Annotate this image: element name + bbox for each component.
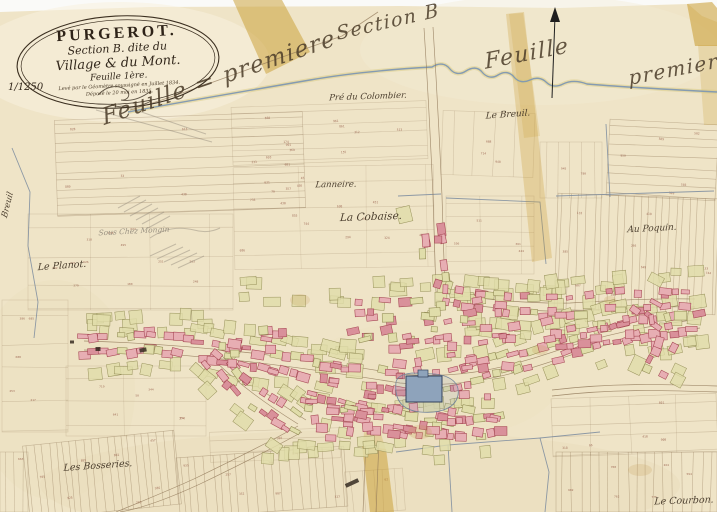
svg-text:295: 295 [631, 244, 637, 248]
svg-text:921: 921 [70, 261, 76, 265]
svg-text:705: 705 [39, 475, 45, 480]
svg-text:907: 907 [275, 491, 281, 495]
svg-text:503: 503 [681, 183, 687, 187]
svg-text:45: 45 [301, 176, 305, 180]
svg-text:861: 861 [339, 124, 345, 128]
scale-note: 1/1250 [8, 82, 43, 93]
svg-text:457: 457 [150, 438, 156, 443]
svg-text:744: 744 [304, 222, 310, 226]
svg-text:895: 895 [81, 458, 87, 463]
svg-text:945: 945 [561, 166, 567, 170]
svg-text:324: 324 [384, 236, 390, 240]
svg-text:602: 602 [568, 488, 574, 492]
svg-text:626: 626 [83, 260, 89, 264]
svg-text:33: 33 [121, 174, 125, 178]
svg-text:251: 251 [158, 260, 164, 264]
svg-text:900: 900 [661, 438, 667, 442]
svg-text:444: 444 [519, 249, 525, 253]
svg-text:513: 513 [397, 128, 403, 132]
stain [604, 296, 616, 304]
svg-text:386: 386 [20, 317, 26, 321]
stain [532, 345, 548, 355]
svg-text:436: 436 [297, 184, 303, 188]
svg-text:649: 649 [641, 265, 647, 269]
svg-text:54: 54 [363, 217, 367, 221]
svg-text:66: 66 [589, 443, 593, 447]
svg-text:495: 495 [121, 243, 127, 247]
svg-text:838: 838 [108, 231, 114, 235]
svg-text:361: 361 [515, 242, 521, 246]
svg-text:961: 961 [333, 119, 339, 123]
map-canvas: 6139018091747334363335766868143843023382… [0, 0, 717, 512]
svg-text:935: 935 [183, 463, 189, 467]
svg-text:582: 582 [694, 131, 700, 135]
svg-text:700: 700 [611, 465, 617, 469]
svg-text:744: 744 [706, 271, 712, 275]
svg-text:801: 801 [114, 453, 120, 458]
church-tower [418, 370, 428, 377]
svg-text:959: 959 [620, 153, 626, 157]
svg-text:621: 621 [264, 180, 270, 184]
svg-text:233: 233 [251, 160, 257, 164]
svg-text:681: 681 [284, 162, 290, 166]
svg-text:925: 925 [67, 496, 73, 501]
svg-text:357: 357 [286, 187, 292, 191]
svg-text:719: 719 [99, 385, 105, 389]
svg-text:757: 757 [179, 416, 185, 420]
svg-text:410: 410 [642, 434, 648, 438]
svg-text:688: 688 [16, 355, 22, 359]
svg-text:686: 686 [240, 248, 246, 252]
svg-text:379: 379 [73, 284, 79, 288]
svg-text:936: 936 [155, 486, 161, 491]
svg-text:155: 155 [341, 150, 347, 154]
svg-text:632: 632 [130, 227, 136, 231]
svg-text:344: 344 [148, 387, 154, 391]
stain [290, 294, 310, 306]
svg-text:556: 556 [454, 242, 460, 246]
svg-text:855: 855 [292, 214, 298, 218]
svg-text:698: 698 [337, 204, 343, 208]
svg-text:594: 594 [687, 472, 693, 476]
svg-text:174: 174 [283, 140, 289, 144]
svg-text:663: 663 [18, 457, 24, 461]
svg-text:133: 133 [577, 211, 583, 215]
svg-text:780: 780 [581, 171, 587, 175]
svg-text:385: 385 [563, 250, 569, 254]
svg-text:418: 418 [646, 212, 652, 216]
svg-text:430: 430 [280, 201, 286, 205]
svg-text:180: 180 [127, 282, 133, 286]
svg-text:50: 50 [135, 394, 139, 398]
svg-text:775: 775 [651, 495, 657, 499]
svg-text:327: 327 [334, 495, 340, 499]
svg-text:733: 733 [250, 198, 256, 202]
stain [408, 425, 432, 439]
svg-text:369: 369 [289, 148, 295, 152]
svg-text:320: 320 [669, 191, 675, 195]
svg-text:217: 217 [30, 398, 36, 402]
svg-text:693: 693 [266, 155, 272, 159]
svg-text:318: 318 [562, 446, 568, 450]
svg-text:569: 569 [659, 137, 665, 141]
svg-text:809: 809 [65, 185, 71, 189]
svg-text:332: 332 [239, 492, 245, 496]
cadastral-map-sheet: 6139018091747334363335766868143843023382… [0, 0, 717, 512]
svg-text:948: 948 [495, 160, 501, 164]
svg-text:318: 318 [87, 237, 93, 241]
svg-text:257: 257 [225, 472, 231, 476]
svg-text:685: 685 [29, 316, 35, 320]
stain [628, 464, 652, 476]
svg-text:451: 451 [373, 200, 379, 204]
svg-text:511: 511 [476, 218, 482, 222]
svg-text:762: 762 [614, 494, 620, 498]
svg-text:253: 253 [9, 389, 15, 393]
svg-text:438: 438 [181, 192, 187, 196]
svg-text:264: 264 [664, 463, 670, 467]
svg-text:392: 392 [52, 266, 58, 270]
svg-text:312: 312 [354, 130, 360, 134]
svg-text:601: 601 [659, 401, 665, 405]
svg-text:828: 828 [70, 127, 76, 131]
svg-text:79: 79 [271, 190, 275, 194]
svg-text:688: 688 [486, 140, 492, 144]
svg-text:668: 668 [265, 116, 271, 120]
svg-text:714: 714 [481, 151, 487, 155]
svg-text:248: 248 [193, 279, 199, 283]
svg-text:294: 294 [345, 235, 351, 239]
svg-text:641: 641 [113, 412, 119, 416]
church-building [406, 376, 442, 402]
